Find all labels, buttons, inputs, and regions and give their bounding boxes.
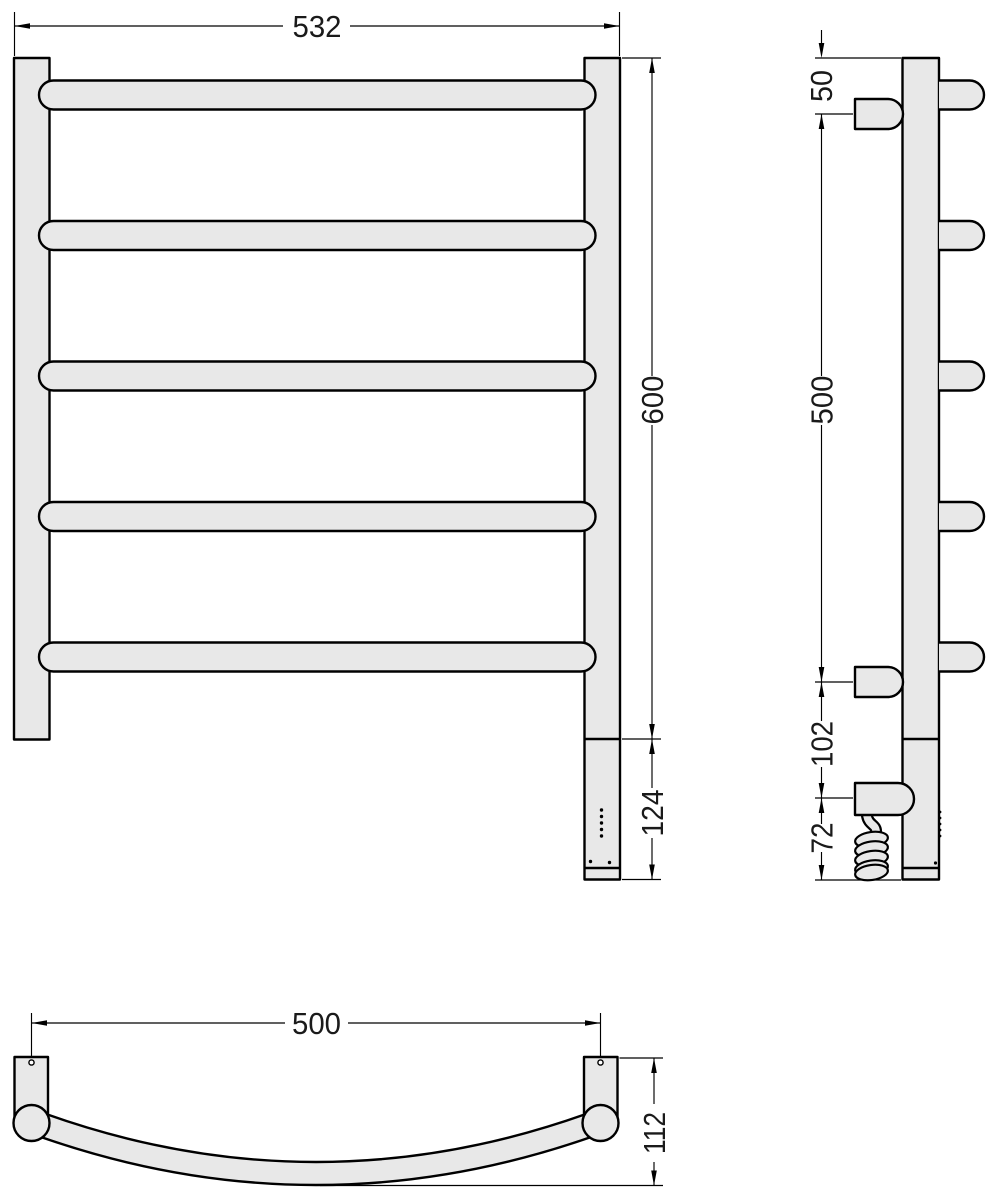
front-heater-label: 124 — [635, 790, 670, 837]
bar-end — [939, 362, 984, 391]
indicator-dot — [939, 811, 942, 814]
front-view: 532 — [14, 9, 670, 880]
screw-dot — [934, 861, 937, 864]
front-width-dimension: 532 — [15, 9, 620, 56]
arrowhead-down — [819, 43, 825, 58]
indicator-dot — [600, 821, 603, 824]
screw-dot — [589, 860, 592, 863]
bottom-span-dimension: 500 — [32, 1006, 601, 1056]
wall-bracket-bottom — [855, 667, 903, 697]
arrowhead-right — [604, 23, 620, 29]
front-height-dimension: 600 — [622, 58, 670, 880]
bar-end — [939, 502, 984, 531]
side-bracket-to-plug-dimension: 102 — [805, 682, 840, 798]
indicator-dot — [600, 815, 603, 818]
indicator-dot — [939, 835, 942, 838]
indicator-dot — [600, 808, 603, 811]
indicator-dot — [600, 834, 603, 837]
bar-end — [939, 221, 984, 250]
indicator-dot — [600, 828, 603, 831]
front-heater-dimension: 124 — [635, 739, 670, 880]
side-bracket-to-plug-label: 102 — [805, 721, 840, 767]
arrowhead-up — [649, 58, 655, 73]
arrowhead-up — [819, 798, 825, 813]
arrowhead-down — [649, 724, 655, 739]
crossbar — [39, 221, 596, 250]
side-post — [903, 58, 940, 880]
drawing-svg: 532 — [0, 0, 997, 1200]
arrowhead-up — [819, 682, 825, 697]
front-width-label: 532 — [293, 9, 342, 44]
curved-bar — [38, 1114, 594, 1185]
bottom-span-label: 500 — [292, 1006, 341, 1041]
arrowhead-down — [651, 1171, 657, 1186]
crossbar — [39, 502, 596, 531]
bottom-depth-label: 112 — [637, 1112, 672, 1154]
side-bar-ends — [939, 81, 984, 672]
wall-bracket-top — [855, 99, 903, 129]
mount-hole-left — [29, 1060, 34, 1065]
indicator-dot — [939, 823, 942, 826]
front-left-post — [14, 58, 50, 740]
crossbar — [39, 81, 596, 110]
front-height-label: 600 — [635, 376, 670, 425]
screw-dot — [608, 861, 611, 864]
bar-end — [939, 81, 984, 110]
arrowhead-down — [819, 667, 825, 682]
arrowhead-right — [585, 1020, 601, 1026]
mount-hole-right — [598, 1060, 603, 1065]
arrowhead-down — [819, 865, 825, 880]
side-cable-dimension: 72 — [805, 798, 840, 880]
side-view: 50 500 102 72 — [804, 30, 984, 882]
indicator-dot — [939, 829, 942, 832]
side-top-offset-label: 50 — [804, 70, 839, 102]
arrowhead-down — [649, 865, 655, 880]
bar-end — [939, 643, 984, 672]
indicator-dot — [939, 817, 942, 820]
crossbar — [39, 362, 596, 391]
arrowhead-left — [15, 23, 31, 29]
arrowhead-down — [819, 783, 825, 798]
side-top-offset-dimension: 50 — [804, 30, 839, 102]
front-crossbars — [39, 81, 596, 672]
bottom-view: 500 112 — [14, 1006, 673, 1186]
side-bracket-span-dimension: 500 — [805, 114, 840, 682]
arrowhead-up — [651, 1058, 657, 1073]
side-cable-label: 72 — [805, 823, 840, 854]
arrowhead-up — [819, 114, 825, 129]
plug-box — [855, 783, 914, 815]
side-bracket-span-label: 500 — [805, 376, 840, 425]
crossbar — [39, 643, 596, 672]
technical-drawing-canvas: 532 — [0, 0, 997, 1200]
arrowhead-up — [649, 739, 655, 754]
post-section-left — [14, 1105, 50, 1141]
post-section-right — [583, 1105, 619, 1141]
arrowhead-left — [32, 1020, 48, 1026]
front-right-post — [585, 58, 621, 880]
